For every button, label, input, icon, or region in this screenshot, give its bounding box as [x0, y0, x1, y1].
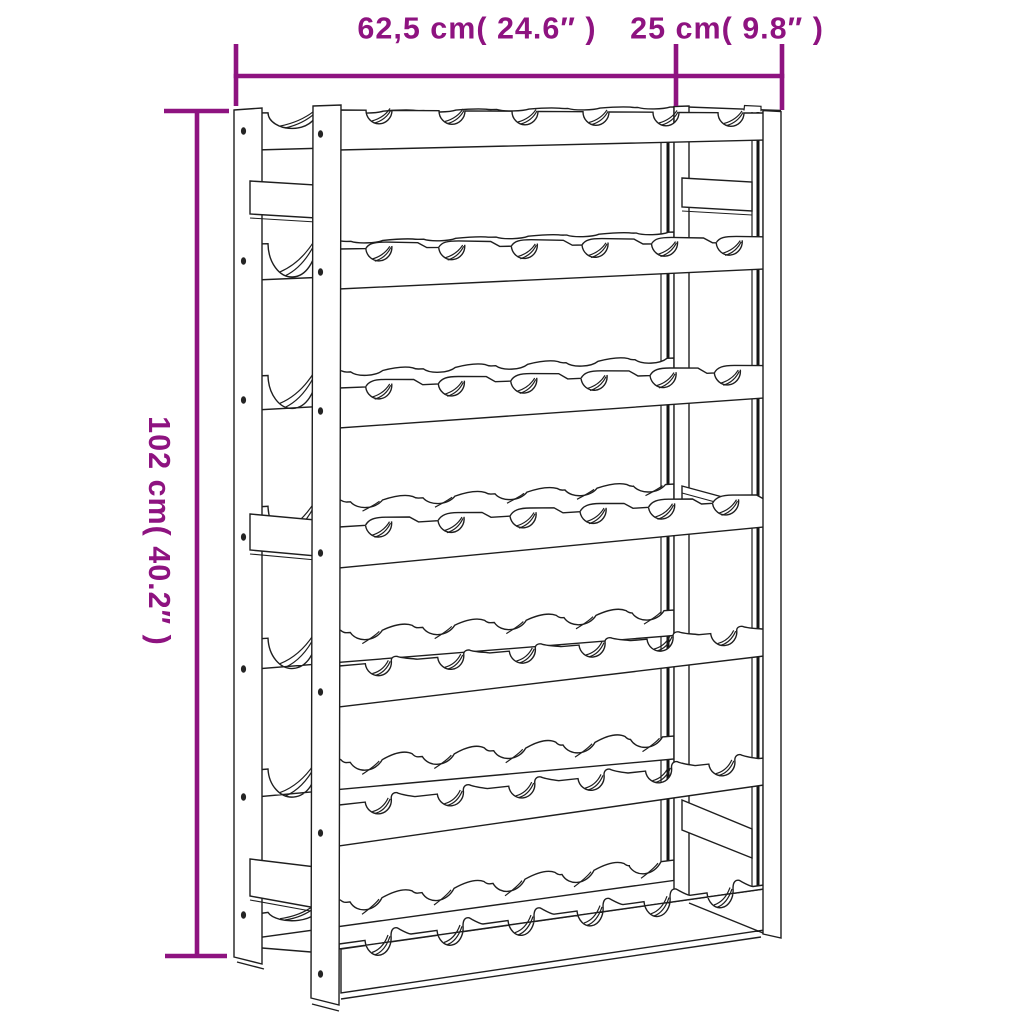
svg-text:25 cm( 9.8″ ): 25 cm( 9.8″ ) [630, 12, 824, 46]
svg-text:62,5 cm( 24.6″ ): 62,5 cm( 24.6″ ) [357, 12, 596, 46]
svg-text:102 cm( 40.2″ ): 102 cm( 40.2″ ) [142, 416, 176, 646]
